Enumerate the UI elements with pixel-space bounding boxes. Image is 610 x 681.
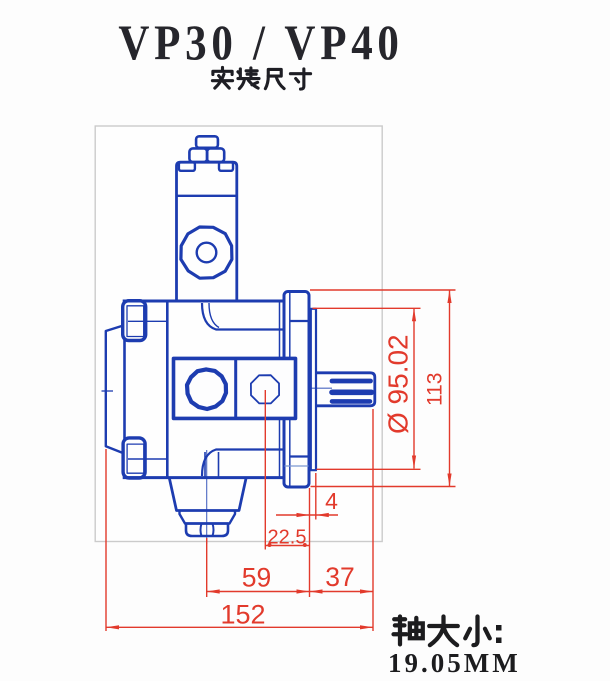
svg-text:Ø 95.02: Ø 95.02 [383,334,414,434]
svg-text:4: 4 [325,488,338,514]
svg-text:59: 59 [242,563,271,593]
svg-text:152: 152 [220,600,265,630]
svg-text:22.5: 22.5 [268,527,307,549]
svg-text:19.05MM: 19.05MM [388,648,521,678]
svg-text:VP30 / VP40: VP30 / VP40 [118,15,403,71]
svg-text:37: 37 [325,562,354,592]
svg-text:113: 113 [424,373,447,406]
